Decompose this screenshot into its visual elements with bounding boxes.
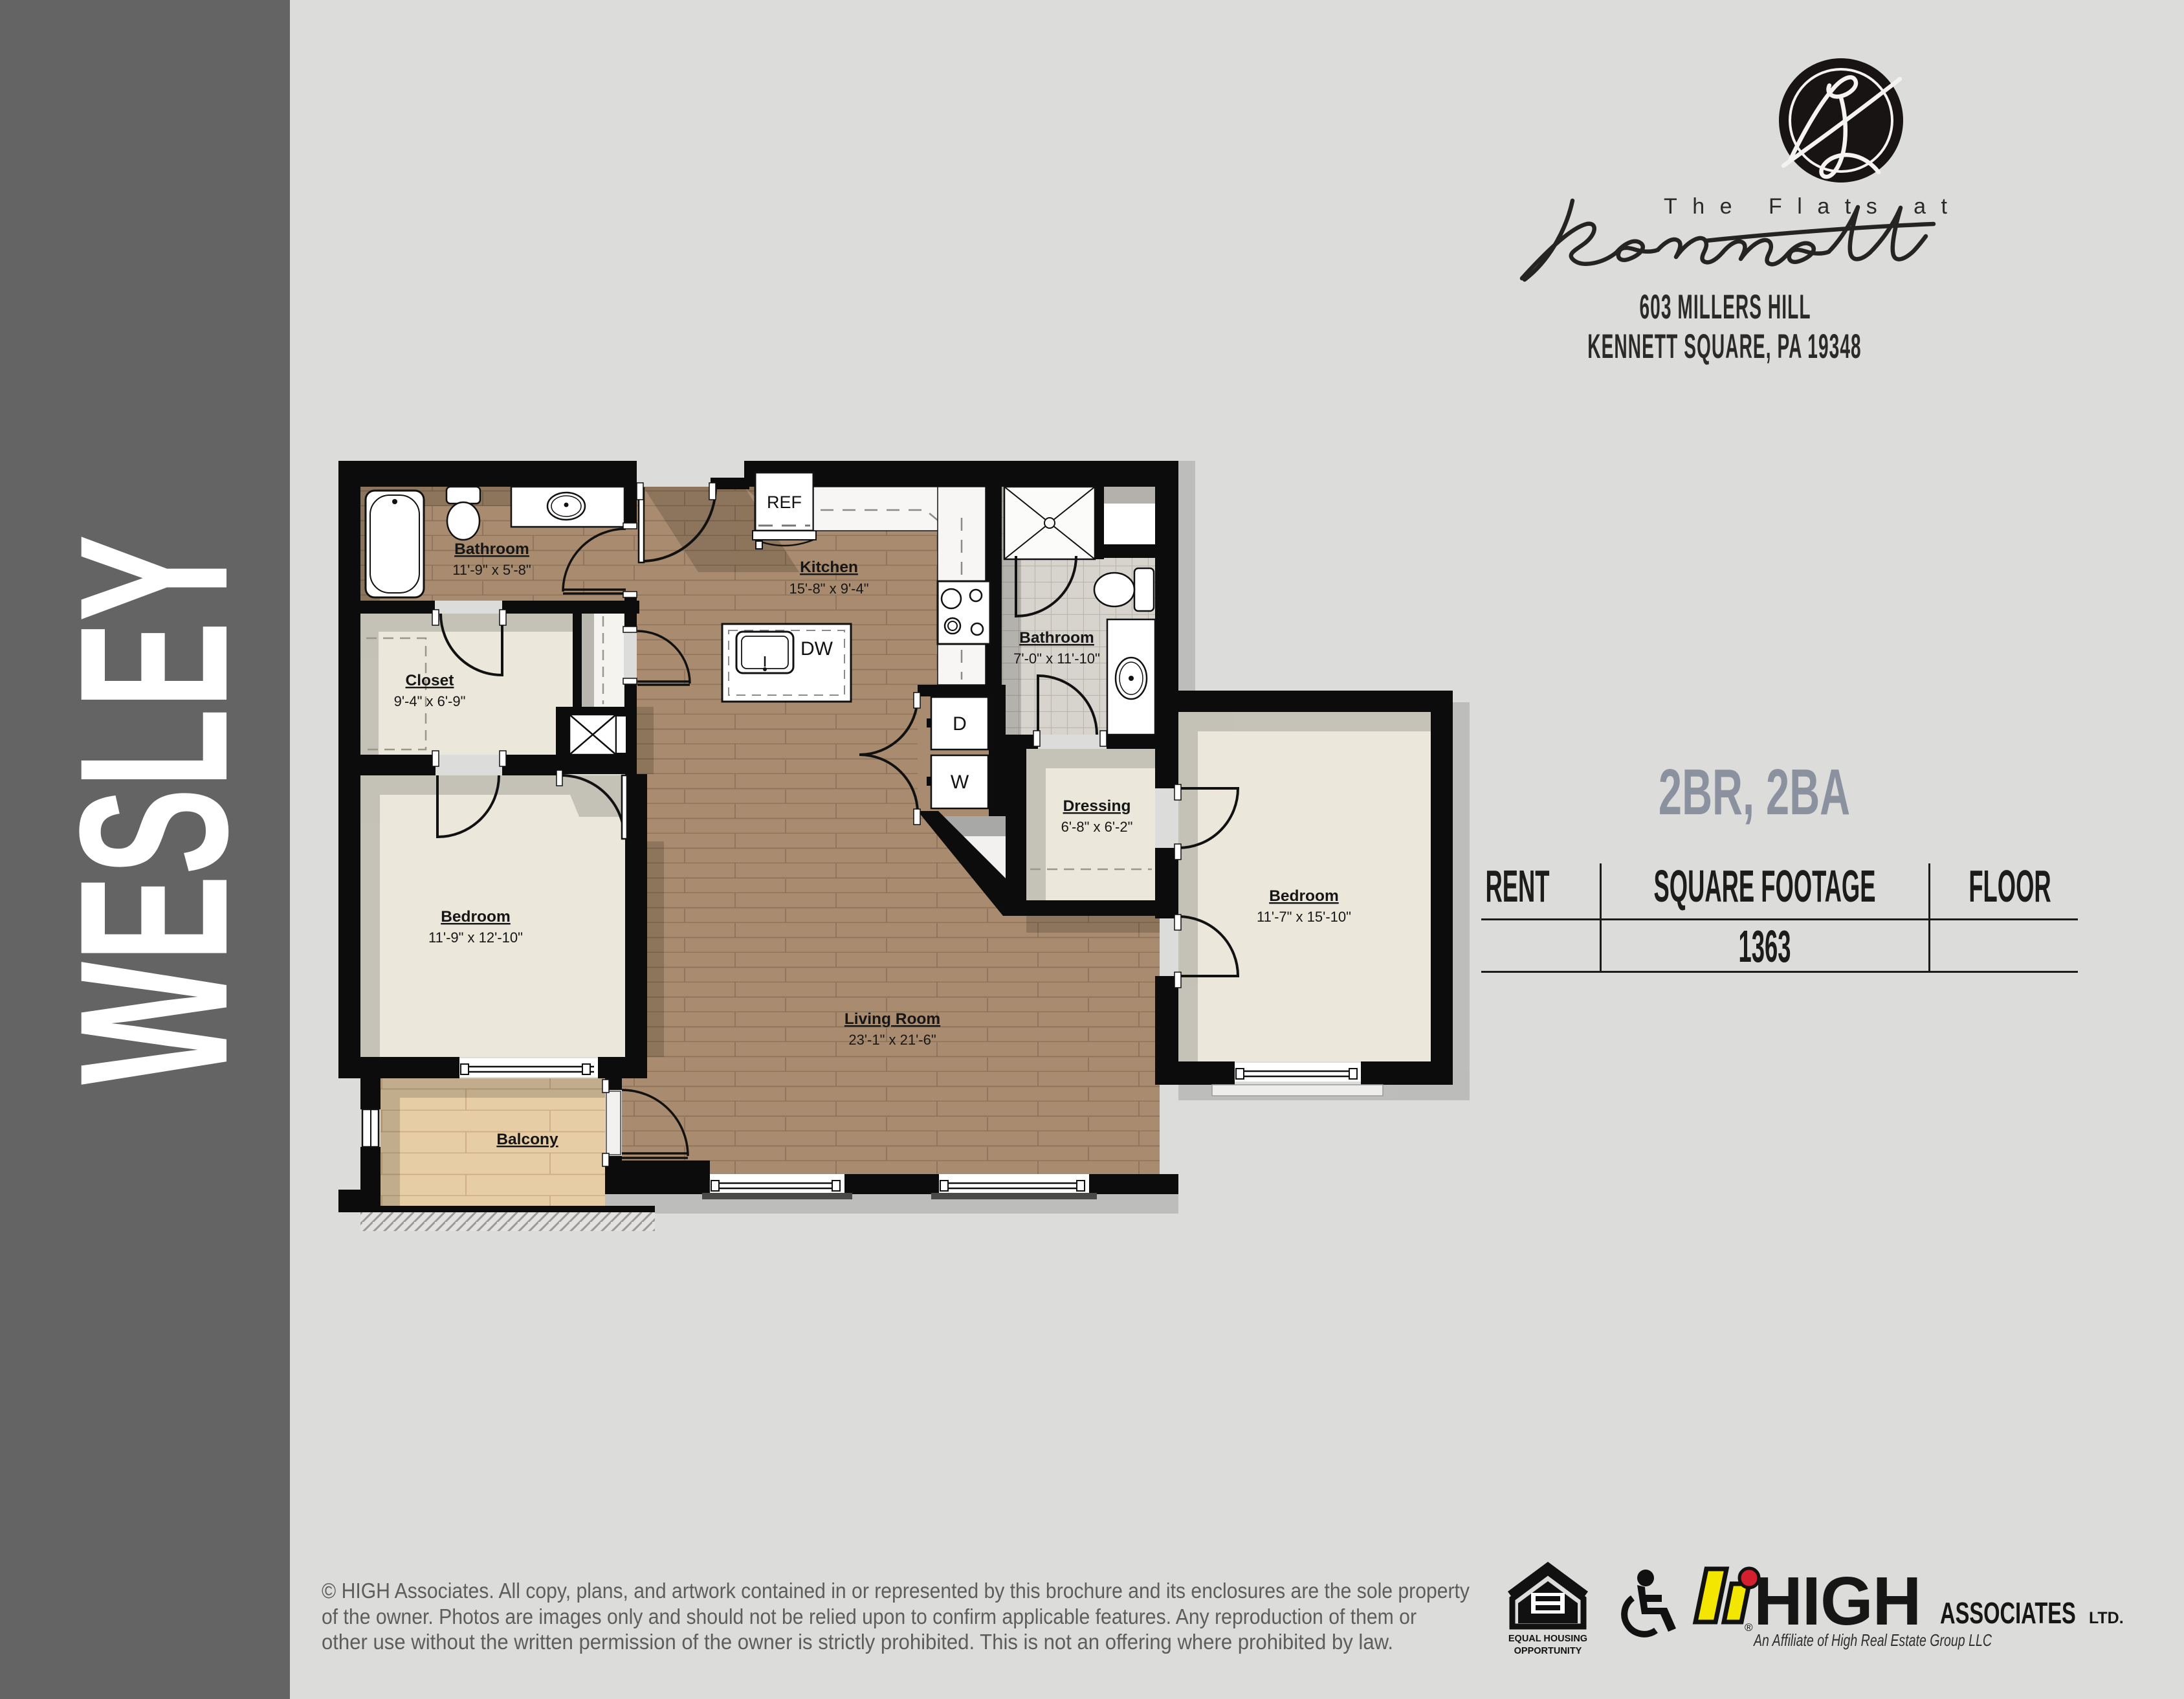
svg-text:KENNETT SQUARE, PA 19348: KENNETT SQUARE, PA 19348	[1587, 328, 1861, 366]
svg-text:FLOOR: FLOOR	[1969, 861, 2051, 911]
svg-text:ASSOCIATES: ASSOCIATES	[1940, 1597, 2076, 1630]
svg-text:11'-7" x 15'-10": 11'-7" x 15'-10"	[1257, 909, 1351, 925]
svg-text:DW: DW	[800, 638, 833, 660]
svg-text:Dressing: Dressing	[1063, 797, 1131, 815]
svg-text:11'-9" x 12'-10": 11'-9" x 12'-10"	[428, 929, 523, 946]
svg-text:7'-0" x 11'-10": 7'-0" x 11'-10"	[1013, 650, 1100, 667]
svg-text:6'-8" x 6'-2": 6'-8" x 6'-2"	[1061, 819, 1133, 835]
svg-text:© HIGH Associates. All copy, p: © HIGH Associates. All copy, plans, and …	[322, 1579, 1470, 1603]
svg-text:other use without the written: other use without the written permission…	[322, 1630, 1393, 1654]
svg-text:9'-4" x 6'-9": 9'-4" x 6'-9"	[394, 693, 466, 709]
svg-text:OPPORTUNITY: OPPORTUNITY	[1514, 1646, 1582, 1656]
svg-text:EQUAL HOUSING: EQUAL HOUSING	[1508, 1634, 1587, 1644]
svg-text:LTD.: LTD.	[2089, 1609, 2124, 1627]
svg-text:Closet: Closet	[406, 672, 454, 689]
svg-text:of the owner. Photos are image: of the owner. Photos are images only and…	[322, 1605, 1417, 1628]
svg-text:11'-9" x 5'-8": 11'-9" x 5'-8"	[452, 562, 531, 578]
svg-text:SQUARE FOOTAGE: SQUARE FOOTAGE	[1654, 861, 1876, 911]
svg-text:Bedroom: Bedroom	[441, 908, 511, 926]
svg-text:W: W	[951, 772, 969, 793]
svg-text:HIGH: HIGH	[1754, 1564, 1921, 1640]
svg-text:Bathroom: Bathroom	[1019, 629, 1094, 647]
svg-text:2BR, 2BA: 2BR, 2BA	[1659, 756, 1850, 828]
svg-text:1363: 1363	[1739, 921, 1791, 972]
svg-text:Living Room: Living Room	[844, 1010, 940, 1028]
svg-text:15'-8" x 9'-4": 15'-8" x 9'-4"	[789, 581, 868, 597]
svg-text:D: D	[953, 713, 967, 735]
svg-text:Balcony: Balcony	[496, 1131, 558, 1148]
svg-text:®: ®	[1745, 1621, 1753, 1634]
svg-text:Kitchen: Kitchen	[800, 559, 858, 576]
svg-text:Bathroom: Bathroom	[454, 540, 529, 558]
svg-text:An Affiliate of High Real Esta: An Affiliate of High Real Estate Group L…	[1752, 1630, 1992, 1650]
svg-text:Bedroom: Bedroom	[1269, 887, 1339, 905]
svg-text:603 MILLERS HILL: 603 MILLERS HILL	[1639, 288, 1811, 326]
svg-text:WESLEY: WESLEY	[36, 535, 272, 1085]
svg-text:REF: REF	[767, 493, 802, 512]
svg-text:23'-1" x 21'-6": 23'-1" x 21'-6"	[848, 1032, 936, 1048]
svg-text:RENT: RENT	[1485, 861, 1549, 911]
